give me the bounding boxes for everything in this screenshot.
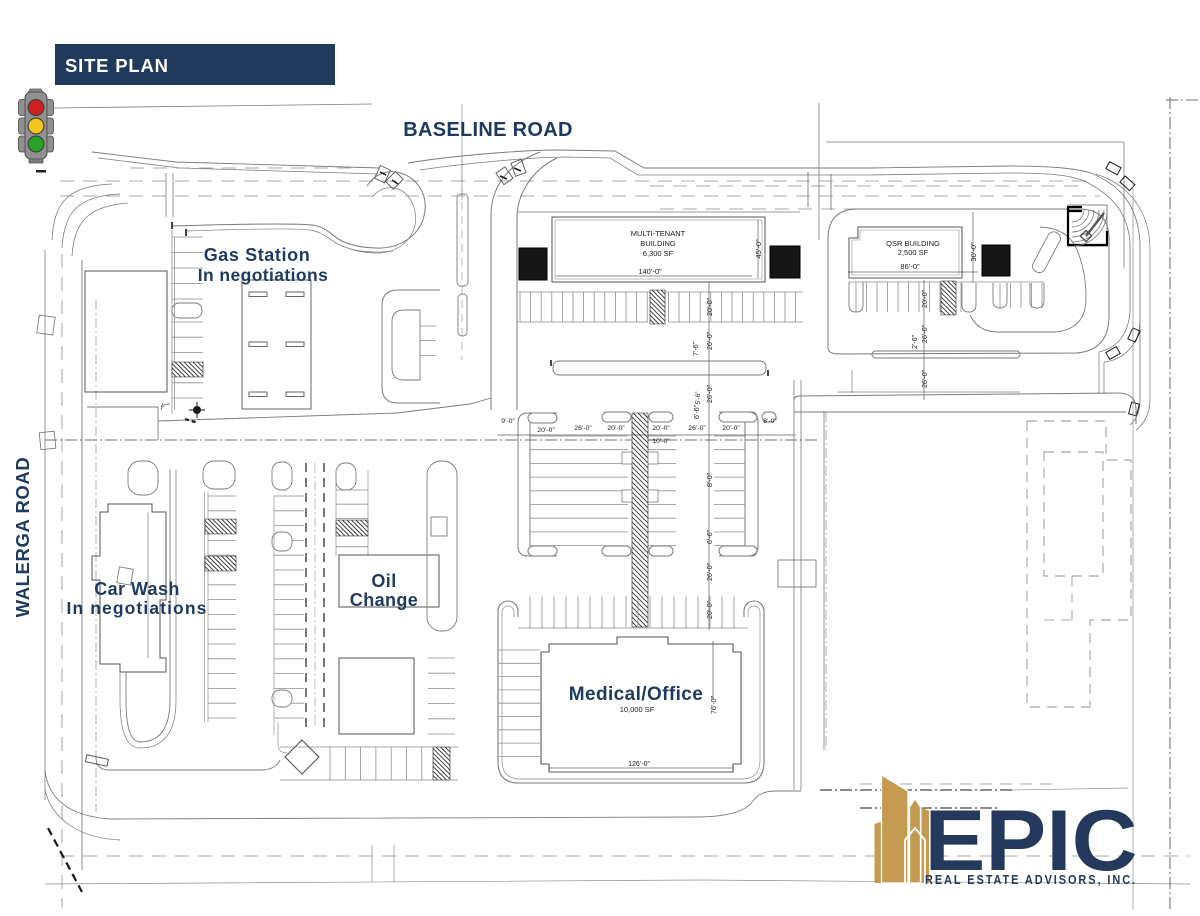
svg-text:MULTI-TENANT: MULTI-TENANT: [631, 229, 686, 238]
svg-text:26’-0”: 26’-0”: [688, 425, 706, 432]
svg-text:86’-0”: 86’-0”: [900, 262, 920, 271]
svg-text:2,500 SF: 2,500 SF: [898, 248, 929, 257]
svg-text:In negotiations: In negotiations: [67, 598, 208, 618]
svg-text:Gas Station: Gas Station: [204, 245, 311, 265]
svg-text:Car Wash: Car Wash: [94, 579, 180, 599]
svg-text:Oil: Oil: [371, 571, 396, 591]
svg-text:26’-0”: 26’-0”: [707, 331, 714, 350]
svg-text:26’-0”: 26’-0”: [707, 562, 714, 581]
svg-text:BASELINE ROAD: BASELINE ROAD: [403, 119, 572, 141]
svg-text:2’-6”: 2’-6”: [912, 334, 919, 349]
svg-text:76’-0”: 76’-0”: [711, 695, 718, 714]
svg-text:BUILDING: BUILDING: [640, 239, 676, 248]
svg-text:Medical/Office: Medical/Office: [569, 684, 703, 705]
svg-text:9’-0”: 9’-0”: [501, 418, 515, 425]
svg-text:20’-0”: 20’-0”: [922, 289, 929, 308]
svg-text:30’-0”: 30’-0”: [969, 242, 978, 262]
svg-text:26’-0”: 26’-0”: [922, 324, 929, 343]
svg-text:126’-0”: 126’-0”: [628, 761, 650, 768]
svg-text:REAL ESTATE ADVISORS, INC.: REAL ESTATE ADVISORS, INC.: [925, 873, 1137, 887]
svg-text:20’-0”: 20’-0”: [537, 427, 555, 434]
svg-text:26’-0”: 26’-0”: [922, 369, 929, 388]
svg-text:20’-0”: 20’-0”: [607, 425, 625, 432]
svg-text:Change: Change: [350, 590, 418, 610]
svg-text:6’-6”: 6’-6”: [694, 404, 701, 419]
svg-text:26’-0”: 26’-0”: [707, 384, 714, 403]
svg-text:6,300 SF: 6,300 SF: [643, 249, 674, 258]
svg-text:WALERGA ROAD: WALERGA ROAD: [12, 457, 33, 618]
svg-text:20’-0”: 20’-0”: [652, 425, 670, 432]
svg-text:10’-0”: 10’-0”: [652, 438, 670, 445]
svg-text:26’-0”: 26’-0”: [574, 425, 592, 432]
svg-text:In negotiations: In negotiations: [198, 265, 328, 285]
svg-text:140’-0”: 140’-0”: [638, 267, 662, 276]
svg-text:SITE PLAN: SITE PLAN: [65, 55, 169, 76]
svg-text:7’-6”: 7’-6”: [693, 341, 700, 356]
svg-text:20’-0”: 20’-0”: [707, 297, 714, 316]
svg-text:6’-6”: 6’-6”: [707, 529, 714, 544]
svg-text:45’-0”: 45’-0”: [754, 239, 763, 259]
svg-text:5’-6”: 5’-6”: [695, 391, 702, 404]
svg-text:10,000 SF: 10,000 SF: [620, 705, 655, 714]
svg-text:QSR BUILDING: QSR BUILDING: [886, 239, 940, 248]
svg-text:8’-0”: 8’-0”: [707, 472, 714, 487]
svg-text:20’-0”: 20’-0”: [707, 600, 714, 619]
svg-text:20’-0”: 20’-0”: [722, 425, 740, 432]
svg-text:8’-0”: 8’-0”: [763, 418, 777, 425]
